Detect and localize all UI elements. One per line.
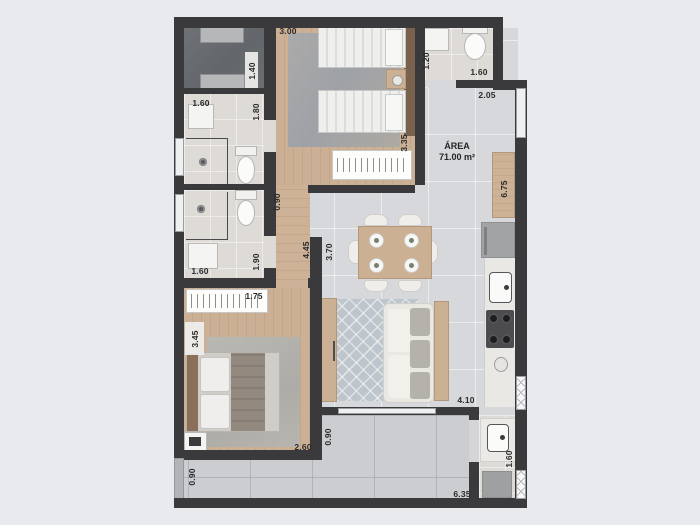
dim-counter-length: 6.75 — [499, 180, 509, 197]
dim-bedroom2-depth: 3.45 — [190, 330, 200, 347]
sink-icon — [421, 28, 449, 51]
toilet-bowl-icon — [237, 200, 255, 226]
plate-icon — [369, 258, 384, 273]
nightstand-icon — [184, 432, 207, 452]
area-value: 71.00 m² — [439, 152, 475, 163]
dim-bath-top-depth: 1.20 — [421, 52, 431, 69]
shower-head-icon — [199, 158, 207, 166]
dim-living-door-width: 0.90 — [323, 428, 333, 445]
console-icon — [434, 301, 449, 401]
dining-table-icon — [358, 226, 432, 279]
dim-terrace-length: 6.35 — [453, 489, 470, 499]
pillow-icon — [385, 94, 403, 131]
sliding-door-icon — [338, 408, 436, 414]
window-icon — [175, 138, 184, 176]
dim-bath-top-width: 1.60 — [470, 67, 487, 77]
window-icon — [516, 88, 526, 138]
fridge-handle-icon — [484, 227, 487, 255]
dim-bath1-width: 1.60 — [192, 98, 209, 108]
toilet-icon — [235, 146, 257, 156]
floor-plan: 3.00 1.40 1.60 1.80 3.35 1.20 1.60 2.05 … — [0, 0, 700, 525]
dim-service-depth: 1.60 — [504, 450, 514, 467]
wall — [174, 17, 184, 463]
dim-laundry-depth: 1.40 — [247, 62, 257, 79]
window-icon — [516, 376, 526, 410]
dim-bath2-depth: 1.90 — [251, 253, 261, 270]
sofa-back-cushion-icon — [410, 340, 430, 368]
door-gap-bath2 — [264, 236, 276, 268]
sofa-seat-cushion-icon — [388, 309, 410, 352]
faucet-icon — [500, 435, 505, 440]
dim-hall-width: 0.90 — [272, 193, 282, 210]
washer-icon — [482, 471, 512, 498]
dim-living-width: 4.10 — [457, 395, 474, 405]
sofa-back-cushion-icon — [410, 308, 430, 336]
sofa-back-cushion-icon — [410, 372, 430, 399]
dim-kitchen-top-width: 2.05 — [478, 90, 495, 100]
handle-icon — [333, 341, 335, 361]
dim-wardrobe2-width: 1.75 — [245, 291, 262, 301]
dim-dining-width: 3.70 — [324, 243, 334, 260]
chair-icon — [364, 214, 388, 226]
dim-bedroom1-width: 3.00 — [279, 26, 296, 36]
wall — [308, 185, 415, 193]
door-gap-service — [469, 420, 479, 462]
pillow-icon — [385, 29, 403, 66]
chair-icon — [398, 214, 422, 226]
dim-bedroom1-depth: 3.35 — [399, 134, 409, 151]
chair-icon — [364, 280, 388, 292]
burner-icon — [501, 313, 512, 324]
wall — [456, 80, 503, 88]
faucet-icon — [504, 285, 509, 290]
wall — [493, 17, 503, 88]
dim-hall-length: 4.45 — [301, 241, 311, 258]
dim-bath1-depth: 1.80 — [251, 103, 261, 120]
pillow-icon — [200, 357, 230, 392]
window-icon — [516, 470, 526, 499]
window-icon — [175, 194, 184, 232]
stove-icon — [486, 310, 514, 348]
countertop-item-icon — [494, 357, 508, 372]
plate-icon — [404, 258, 419, 273]
burner-icon — [501, 334, 512, 345]
sofa-seat-cushion-icon — [388, 355, 410, 398]
blanket-icon — [231, 353, 265, 431]
bed-single-icon — [318, 25, 406, 68]
sofa-icon — [383, 303, 434, 403]
dim-bedroom2-width: 2.60 — [294, 442, 311, 452]
wall — [184, 184, 265, 190]
burner-icon — [488, 313, 499, 324]
bed-single-icon — [318, 90, 406, 133]
wall — [264, 17, 276, 120]
toilet-bowl-icon — [464, 33, 486, 60]
nightstand-icon — [386, 69, 406, 89]
shower-icon — [186, 138, 228, 184]
pillow-icon — [200, 394, 230, 429]
plate-icon — [404, 233, 419, 248]
dim-terrace-depth: 0.90 — [187, 468, 197, 485]
area-label: ÁREA 71.00 m² — [439, 141, 475, 163]
wall — [515, 85, 527, 508]
area-title: ÁREA — [439, 141, 475, 152]
lamp-icon — [392, 75, 403, 86]
door-gap-bath-top — [428, 80, 456, 88]
plate-icon — [369, 233, 384, 248]
chair-icon — [398, 280, 422, 292]
wall — [184, 88, 265, 94]
burner-icon — [488, 334, 499, 345]
wall — [174, 17, 503, 28]
wall — [184, 278, 268, 288]
kitchen-sink-icon — [489, 272, 512, 303]
door-gap-bath1 — [264, 120, 276, 152]
toilet-bowl-icon — [237, 156, 255, 184]
tv-icon — [189, 437, 201, 446]
laundry-sink-icon — [487, 424, 509, 452]
shower-head-icon — [197, 205, 205, 213]
shower-icon — [186, 192, 228, 240]
dim-bath2-width: 1.60 — [191, 266, 208, 276]
toilet-icon — [235, 190, 257, 200]
tv-sideboard-icon — [320, 298, 337, 402]
wall — [310, 237, 322, 460]
wall — [469, 407, 479, 420]
headboard-icon — [187, 353, 198, 431]
wardrobe-icon — [332, 150, 412, 180]
fridge-icon — [481, 222, 515, 258]
bed-double-icon — [186, 352, 280, 432]
